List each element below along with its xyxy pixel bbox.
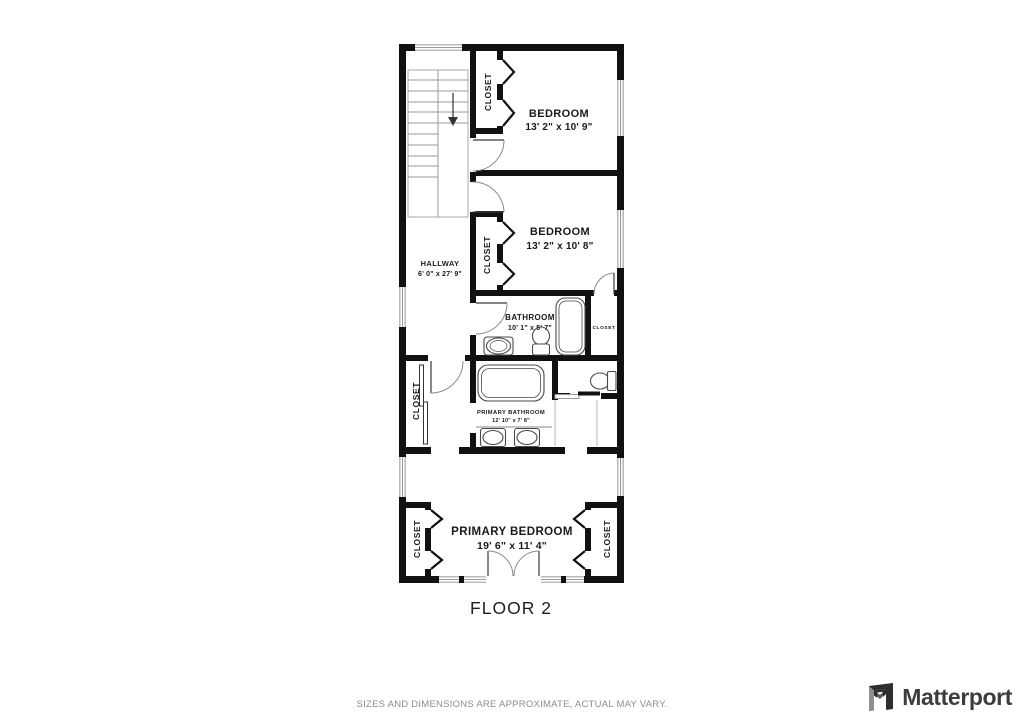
door-arc — [476, 303, 507, 334]
window — [415, 45, 462, 50]
matterport-logo-icon — [866, 681, 896, 713]
matterport-logo: Matterport — [866, 681, 1012, 713]
sliding-door — [424, 402, 428, 444]
window — [618, 210, 623, 268]
closet-label-bathroom-closet: CLOSET — [592, 325, 615, 331]
closet-label-hall-closet: CLOSET — [411, 382, 421, 420]
bifold-door — [503, 60, 514, 84]
bifold-door — [574, 510, 585, 528]
room-label-primary-bedroom: PRIMARY BEDROOM — [451, 526, 573, 538]
toilet-tank — [533, 344, 550, 355]
room-dims-primary-bathroom: 12' 10" x 7' 8" — [492, 418, 530, 424]
bifold-door — [574, 551, 585, 569]
staircase — [408, 70, 468, 217]
toilet — [591, 373, 610, 389]
bifold-door — [431, 510, 442, 528]
closet-label-bedroom1-closet: CLOSET — [483, 73, 493, 111]
room-dims-bedroom2: 13' 2" x 10' 8" — [526, 241, 593, 252]
room-label-hallway: HALLWAY — [421, 259, 460, 268]
bifold-door — [503, 222, 514, 244]
door-arc — [473, 140, 504, 171]
floorplan-canvas: BEDROOM 13' 2" x 10' 9" BEDROOM 13' 2" x… — [0, 0, 1024, 724]
door-arc — [594, 273, 614, 294]
room-label-bathroom: BATHROOM — [505, 313, 555, 322]
pocket-door-track — [555, 395, 579, 399]
window — [618, 458, 623, 496]
page: BEDROOM 13' 2" x 10' 9" BEDROOM 13' 2" x… — [0, 0, 1024, 724]
sink-basin — [517, 431, 537, 445]
toilet-tank — [608, 372, 617, 391]
room-dims-bedroom1: 13' 2" x 10' 9" — [525, 122, 592, 133]
floor-title: FLOOR 2 — [470, 598, 552, 618]
room-label-bedroom2: BEDROOM — [530, 226, 590, 238]
window — [541, 577, 561, 582]
window — [400, 287, 405, 327]
window — [439, 577, 459, 582]
window — [618, 80, 623, 136]
closet-label-primary-left: CLOSET — [412, 520, 422, 558]
bifold-door — [431, 551, 442, 569]
room-label-bedroom1: BEDROOM — [529, 108, 589, 120]
pocket-door-leaf — [578, 392, 600, 396]
door-arc — [514, 551, 539, 576]
stair-direction-arrow-icon — [448, 117, 458, 126]
matterport-wordmark: Matterport — [902, 684, 1012, 711]
door-arc — [431, 361, 463, 393]
door-arc — [488, 551, 513, 576]
bifold-door — [503, 263, 514, 285]
sink-basin — [483, 431, 503, 445]
room-dims-hallway: 6' 0" x 27' 9" — [418, 271, 462, 278]
door-arc — [473, 182, 504, 212]
room-label-primary-bathroom: PRIMARY BATHROOM — [477, 410, 545, 416]
bifold-door — [503, 100, 514, 126]
window — [400, 457, 405, 497]
room-dims-bathroom: 10' 1" x 5' 7" — [508, 325, 552, 332]
closet-label-primary-right: CLOSET — [602, 520, 612, 558]
room-dims-primary-bedroom: 19' 6" x 11' 4" — [477, 540, 547, 552]
closet-label-bedroom2-closet: CLOSET — [482, 236, 492, 274]
window — [464, 577, 486, 582]
window — [566, 577, 584, 582]
